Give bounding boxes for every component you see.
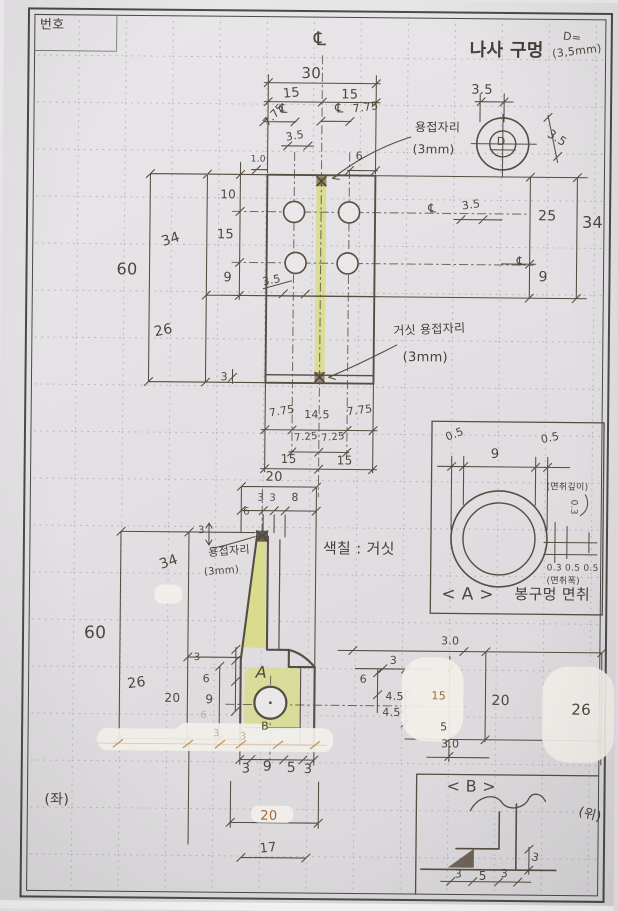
dim-chain-15-r: 15 (337, 454, 353, 466)
sv-dim-6-left: 6 (203, 673, 210, 684)
weld-note-size: (3mm) (413, 143, 455, 155)
sv-dim-20-left: 20 (164, 692, 180, 704)
sv-bottom-3b: 3 (304, 763, 313, 776)
da-caption-bracket: < A > (441, 586, 494, 604)
dim-edge-6: 6 (356, 151, 363, 162)
faint-6: 6 (200, 711, 207, 721)
weld-note-label: 용접자리 (415, 121, 460, 133)
sv-weld-dim-3: 3 (198, 526, 205, 536)
da-width-values: 0.3 0.5 0.5 (547, 564, 599, 573)
centerline-symbol-row1: ℄ (428, 202, 436, 214)
label-b: B (261, 721, 269, 732)
dim-right-34: 34 (582, 215, 603, 231)
screw-dim-top-3-5: 3.5 (471, 84, 493, 97)
screw-hole-title: 나사 구멍 (470, 42, 544, 61)
sv-bottom-9: 9 (263, 760, 272, 774)
dim-3-bottom: 3 (220, 371, 227, 382)
dim-9-vert: 9 (223, 271, 232, 284)
da-caption-text: 봉구멍 면취 (514, 587, 590, 603)
dim-front-15-right: 15 (341, 88, 358, 101)
faint-3b: 3 (240, 732, 247, 742)
db-dim-3b: 3 (501, 868, 508, 879)
rb-dim-4-5a: 4.5 (385, 691, 404, 702)
da-dim-9: 9 (491, 448, 500, 461)
sv-bottom-20: 20 (260, 810, 277, 823)
note-left: (좌) (44, 793, 69, 807)
dim-right-25: 25 (538, 209, 557, 223)
gusset-weld-label: 거싯 용접자리 (393, 322, 466, 337)
dim-right-9: 9 (538, 270, 547, 284)
dim-20-top-side: 20 (265, 471, 282, 484)
rb-dim-15: 15 (431, 690, 446, 701)
sv-dim-8: 8 (291, 492, 298, 503)
dim-1-0: 1.0 (251, 156, 266, 165)
dim-26-left: 26 (153, 322, 174, 339)
dim-15-vert: 15 (217, 228, 234, 241)
rb-dim-3-0-top: 3.0 (441, 635, 460, 646)
screw-hole-d-eq: D= (562, 31, 582, 44)
rb-dim-3-0-bottom: 3.0 (441, 738, 460, 749)
sv-dim-26: 26 (127, 675, 147, 691)
color-note: 색칠 : 거싯 (323, 541, 395, 557)
sv-bottom-5: 5 (287, 761, 296, 775)
sv-dim-3b: 3 (269, 494, 276, 504)
da-note-depth: (면취깊이) (546, 483, 588, 492)
dim-front-15-left: 15 (282, 86, 300, 101)
dim-hole-3-5: 3.5 (261, 273, 281, 287)
dim-chain-15-l: 15 (281, 453, 297, 465)
dim-offset-7-75-right: 7.75 (352, 100, 379, 114)
centerline-symbol-right-col: ℄ (335, 102, 344, 115)
centerline-symbol-top: ℄ (314, 30, 327, 49)
label-a: A (256, 665, 267, 681)
da-dim-0-5-right: 0.5 (540, 431, 560, 445)
gusset-weld-size: (3mm) (403, 351, 448, 364)
drawing-sheet: 번호 (좌) (위) ℄ 30 15 15 ℄ 7.75 ℄ 7.75 3.5 … (0, 0, 618, 911)
photo-of-drawing: 번호 (좌) (위) ℄ 30 15 15 ℄ 7.75 ℄ 7.75 3.5 … (0, 0, 618, 911)
sv-bottom-3a: 3 (242, 762, 251, 775)
rb-dim-3: 3 (390, 655, 397, 666)
rb-dim-20: 20 (491, 694, 510, 708)
rb-dim-6: 6 (360, 674, 367, 685)
centerline-symbol-row2: ℄ (517, 255, 525, 267)
rb-dim-5: 5 (440, 721, 447, 732)
rb-dim-26: 26 (571, 703, 591, 718)
rb-dim-4-5b: 4.5 (382, 707, 401, 718)
sv-dim-3-left: 3 (194, 653, 201, 663)
dim-chain-14-5: 14.5 (304, 409, 330, 420)
dim-3-5-mid: 3.5 (285, 129, 305, 143)
sheet-number-label: 번호 (40, 18, 65, 31)
sv-bottom-17: 17 (259, 841, 277, 856)
db-dim-5: 5 (479, 870, 487, 882)
da-depth-value: 0.3 (568, 500, 577, 515)
db-dim-3a: 3 (455, 869, 462, 880)
sv-dim-3a: 3 (257, 494, 264, 504)
dim-10: 10 (220, 188, 236, 200)
dim-front-width-30: 30 (301, 66, 321, 81)
sv-weld-label: 용접자리 (208, 544, 250, 558)
db-caption: < B > (447, 778, 497, 794)
sv-dim-60: 60 (84, 625, 106, 642)
dim-chain-7-75-r: 7.75 (346, 403, 373, 417)
dim-60-left: 60 (116, 261, 137, 277)
sv-dim-9-left: 9 (205, 693, 213, 705)
faint-3a: 3 (213, 729, 220, 739)
sv-dim-6-top: 6 (243, 507, 250, 517)
screw-center-letter: D (497, 136, 506, 147)
dim-right-3-5: 3.5 (461, 198, 481, 211)
